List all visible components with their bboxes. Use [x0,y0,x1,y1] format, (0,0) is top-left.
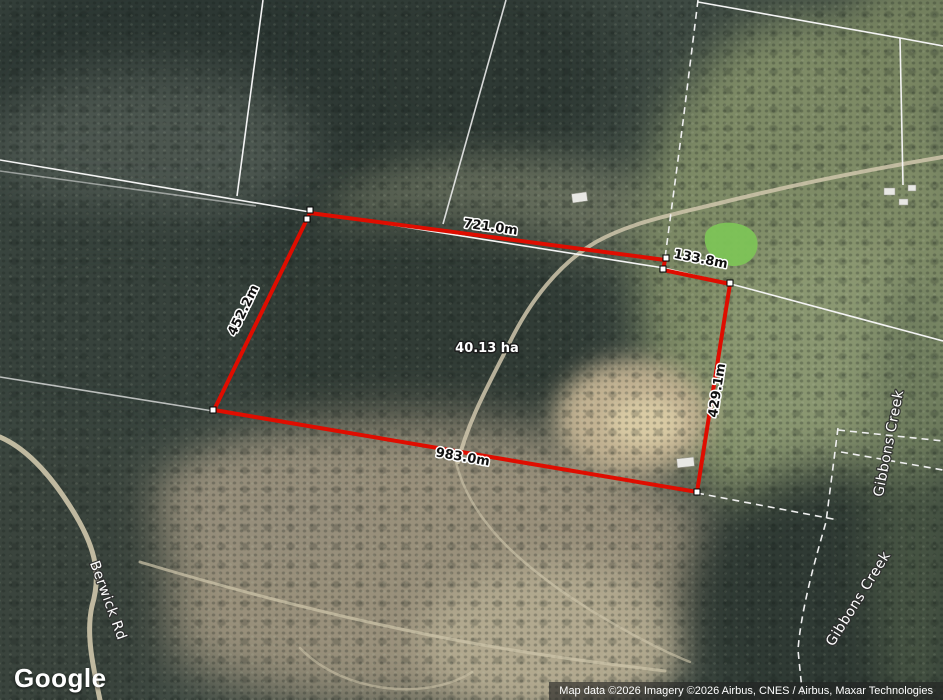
parcel-line-dashed [697,493,838,520]
place-labels: Berwick Rd Gibbons Creek Gibbons Creek [86,388,907,649]
building [884,188,895,195]
track-bottom [140,562,665,671]
measurement-labels: 721.0m 133.8m 429.1m 983.0m 452.2m 40.13… [225,216,729,469]
vertex-marker[interactable] [663,255,669,261]
building [899,199,908,205]
building [572,192,588,203]
building [908,185,916,191]
parcel-line [0,171,256,206]
road-top-right [458,157,943,462]
creek-label-upper: Gibbons Creek [871,388,908,498]
parcel-line [237,0,263,196]
map-canvas[interactable]: 721.0m 133.8m 429.1m 983.0m 452.2m 40.13… [0,0,943,700]
building [677,457,695,468]
road-berwick [0,437,100,700]
vertex-marker[interactable] [304,216,310,222]
parcel-line [698,2,943,46]
creek-label-lower: Gibbons Creek [823,548,894,649]
edge-length-label-east: 429.1m [706,362,729,418]
parcel-line [0,377,213,411]
vertex-marker[interactable] [210,407,216,413]
edge-length-label-south: 983.0m [434,445,490,469]
track-mid [456,462,690,662]
vertex-marker[interactable] [694,489,700,495]
map-overlay: 721.0m 133.8m 429.1m 983.0m 452.2m 40.13… [0,0,943,700]
area-label: 40.13 ha [455,341,519,356]
vertex-marker[interactable] [307,207,313,213]
parcel-line [310,212,943,341]
attribution-bar: Map data ©2026 Imagery ©2026 Airbus, CNE… [549,682,943,700]
parcel-line [0,160,310,212]
parcel-line-dashed [798,428,838,700]
vertex-marker[interactable] [660,266,666,272]
edge-length-label-west: 452.2m [225,283,262,339]
parcel-line [443,0,506,224]
attribution-text: Map data ©2026 Imagery ©2026 Airbus, CNE… [559,685,933,697]
vertex-marker[interactable] [727,280,733,286]
parcel-line-dashed [665,0,698,258]
track-loop [300,648,472,689]
google-logo[interactable]: Google [14,663,107,694]
